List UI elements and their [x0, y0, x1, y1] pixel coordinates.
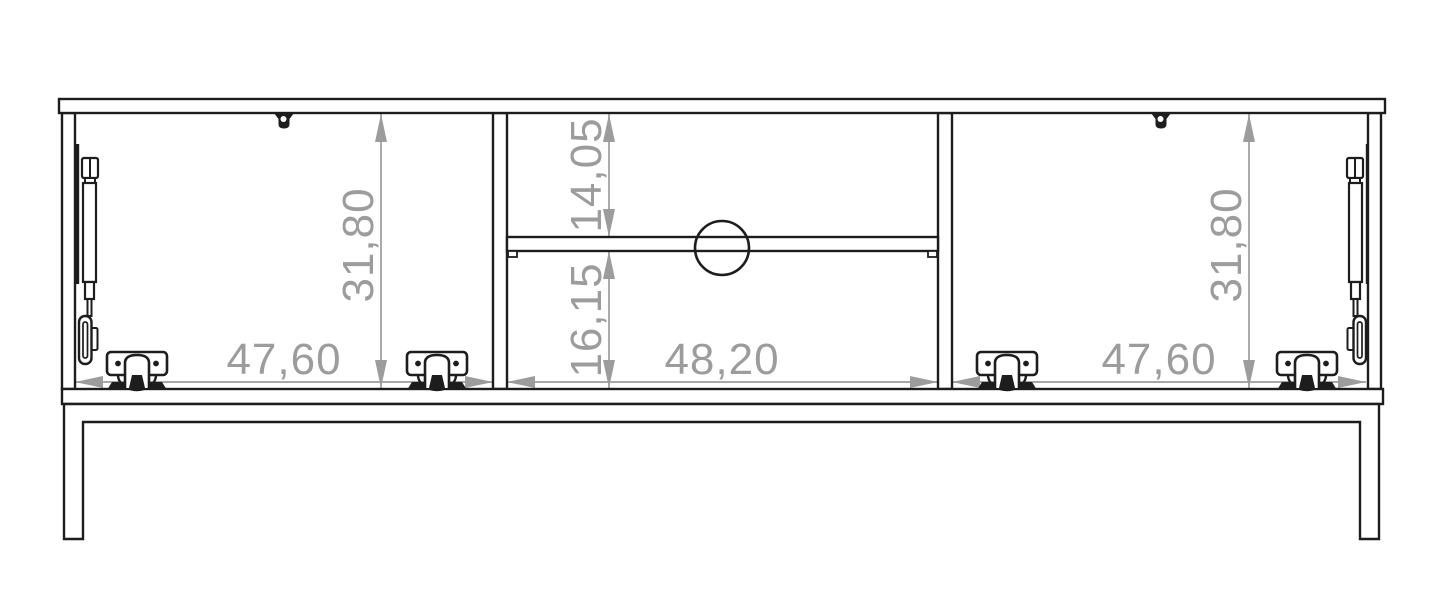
- left-side-panel: [62, 113, 75, 389]
- shelf-support-left: [508, 251, 517, 257]
- right-side-panel: [1368, 113, 1381, 389]
- middle-shelf: [507, 237, 938, 251]
- top-panel: [59, 99, 1385, 113]
- right-divider-panel: [938, 113, 952, 389]
- dimension-value: 47,60: [226, 335, 341, 384]
- door-hinge-3: [977, 352, 1037, 390]
- dimension-value: 48,20: [664, 335, 779, 384]
- arrowhead-right: [1338, 376, 1366, 388]
- gas-strut-left: [76, 144, 98, 364]
- arrowhead-down: [1243, 360, 1255, 388]
- bottom-panel: [62, 389, 1383, 404]
- dimension-upper-niche-height: 14,05: [562, 114, 615, 237]
- left-divider-panel: [493, 113, 507, 389]
- technical-drawing-canvas: 47,60 48,20 47,60 31,80 31,8: [0, 0, 1445, 615]
- arrowhead-left: [507, 376, 535, 388]
- arrowhead-right: [465, 376, 493, 388]
- arrowhead-down: [375, 360, 387, 388]
- gas-strut-right-mirror: [1347, 144, 1369, 364]
- dimension-value: 31,80: [334, 187, 383, 302]
- dimension-lower-niche-height: 16,15: [562, 251, 615, 388]
- arrowhead-up: [375, 114, 387, 142]
- door-stay-bracket-right: [1151, 113, 1171, 129]
- dimension-value: 47,60: [1101, 335, 1216, 384]
- arrowhead-up: [1243, 114, 1255, 142]
- door-stay-bracket-left: [274, 113, 294, 129]
- arrowhead-right: [910, 376, 938, 388]
- arrowhead-left: [75, 376, 103, 388]
- tv-stand-drawing: 47,60 48,20 47,60 31,80 31,8: [0, 0, 1445, 615]
- gas-strut-right: [1347, 144, 1369, 364]
- arrowhead-left: [952, 376, 980, 388]
- base-frame-with-legs: [64, 404, 1379, 539]
- dimension-value: 16,15: [562, 262, 611, 377]
- door-hinge-4: [1277, 352, 1337, 390]
- door-hinge-2: [407, 352, 467, 390]
- door-hinge-1: [107, 352, 167, 390]
- dimension-left-height: 31,80: [334, 114, 387, 388]
- dimension-value: 14,05: [562, 117, 611, 232]
- dimension-value: 31,80: [1202, 187, 1251, 302]
- shelf-support-right: [928, 251, 937, 257]
